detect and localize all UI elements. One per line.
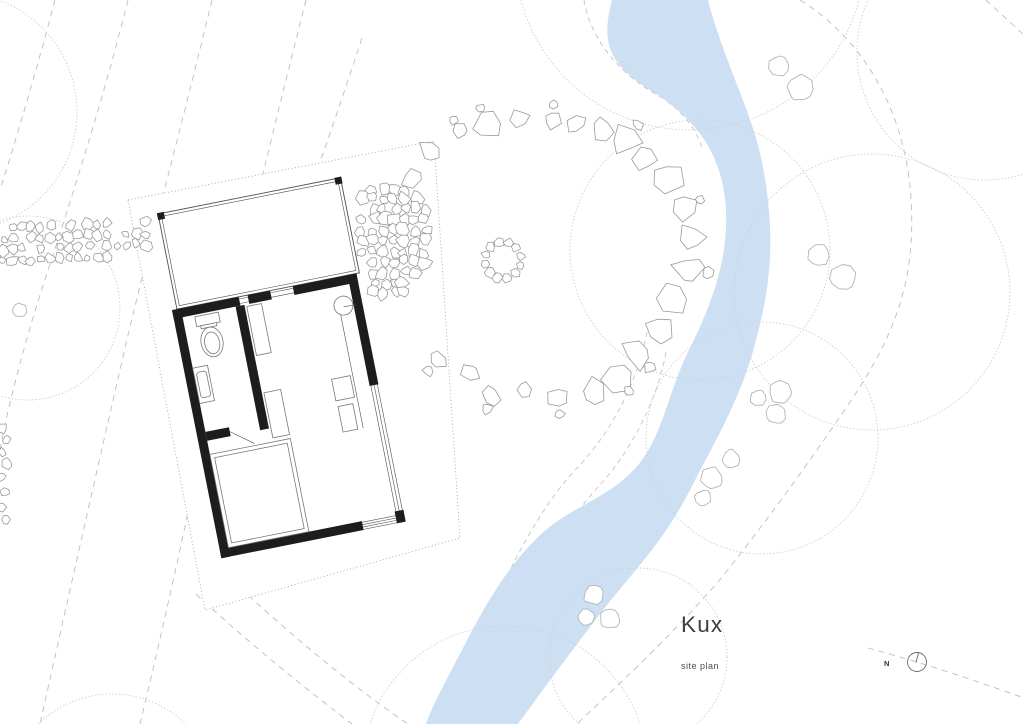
- stone: [481, 251, 490, 258]
- stone: [546, 113, 562, 130]
- bush: [787, 74, 813, 100]
- stone: [654, 167, 684, 194]
- stone: [0, 447, 6, 457]
- stone: [460, 365, 479, 381]
- stone: [486, 242, 495, 251]
- deck-post: [157, 212, 165, 220]
- stone: [567, 116, 586, 132]
- stone: [35, 222, 43, 234]
- stone: [673, 197, 697, 222]
- bush: [829, 265, 855, 290]
- stool: [332, 376, 355, 401]
- bush: [751, 390, 767, 405]
- stone: [55, 233, 62, 241]
- stone: [671, 260, 705, 282]
- stone: [517, 382, 532, 397]
- tree-canopy: [0, 0, 77, 231]
- stone: [45, 232, 57, 244]
- stone: [0, 257, 6, 264]
- bush: [769, 56, 789, 76]
- stone: [645, 362, 656, 372]
- stone: [3, 435, 12, 443]
- stone: [0, 488, 10, 496]
- contour-line: [986, 0, 1024, 35]
- stone: [6, 257, 18, 266]
- stone: [114, 242, 120, 250]
- bush: [601, 609, 620, 628]
- stone: [594, 117, 614, 141]
- deck-post: [334, 177, 342, 185]
- stone: [103, 230, 111, 240]
- stone: [2, 515, 11, 524]
- stone: [494, 238, 504, 247]
- project-title: Kux: [681, 612, 723, 637]
- site-plan-drawing: Kux site plan N: [0, 0, 1024, 724]
- stone: [549, 100, 558, 109]
- stone: [483, 405, 494, 416]
- site-plan-page: { "title": { "project": "Kux", "subtitle…: [0, 0, 1024, 724]
- stone: [681, 225, 708, 249]
- bush: [766, 405, 785, 424]
- bush: [700, 467, 721, 489]
- stone: [633, 120, 643, 131]
- stone: [17, 243, 25, 251]
- stone: [548, 390, 567, 407]
- stone: [84, 255, 90, 261]
- stone-row: [0, 216, 153, 265]
- fire-pit: [481, 238, 526, 283]
- stone: [86, 242, 96, 249]
- stone: [473, 111, 501, 135]
- stone: [72, 242, 83, 253]
- stone: [656, 283, 686, 313]
- drawing-subtitle: site plan: [681, 661, 719, 671]
- stone: [8, 233, 19, 242]
- stone: [93, 253, 103, 262]
- stone: [517, 262, 524, 270]
- stone: [75, 252, 83, 262]
- stone: [625, 386, 634, 395]
- north-dial-icon: [908, 653, 927, 672]
- stone: [66, 220, 76, 232]
- bush: [770, 380, 792, 403]
- stone: [0, 473, 6, 482]
- stone: [17, 222, 27, 231]
- stone: [0, 424, 6, 433]
- bush: [13, 303, 27, 316]
- stone: [102, 240, 112, 250]
- stone: [453, 124, 467, 139]
- contour-line: [196, 594, 352, 724]
- stone: [122, 231, 129, 237]
- stone: [45, 253, 57, 263]
- stone: [703, 266, 714, 278]
- stone: [103, 218, 112, 228]
- stone: [37, 256, 45, 262]
- stone: [123, 242, 131, 250]
- stone: [47, 220, 56, 230]
- tree-canopy: [6, 694, 218, 724]
- bush: [808, 245, 829, 266]
- stone: [510, 110, 530, 128]
- stone: [82, 218, 95, 230]
- stone: [0, 503, 7, 512]
- stone: [511, 244, 520, 252]
- contour-line: [0, 0, 55, 190]
- stone: [66, 254, 73, 262]
- stone: [389, 259, 400, 267]
- stone: [418, 213, 428, 223]
- contour-line: [868, 648, 1024, 698]
- stone: [555, 410, 566, 419]
- stone: [1, 237, 8, 243]
- stone: [632, 147, 658, 171]
- bush: [723, 449, 740, 468]
- stone: [2, 458, 12, 470]
- stone: [476, 104, 485, 112]
- stone: [103, 251, 112, 263]
- stone: [26, 221, 35, 232]
- stone: [93, 220, 101, 229]
- stone: [511, 268, 520, 277]
- north-indicator: N: [884, 653, 927, 672]
- stone: [481, 260, 490, 268]
- stone: [55, 252, 64, 263]
- bush: [694, 490, 710, 505]
- stone: [517, 252, 526, 260]
- stone: [73, 230, 84, 239]
- stone: [502, 274, 512, 283]
- stone: [37, 245, 45, 254]
- stone: [645, 319, 672, 344]
- north-needle-icon: [916, 653, 919, 663]
- stone: [57, 244, 64, 251]
- north-label: N: [884, 659, 889, 668]
- stone: [482, 385, 501, 406]
- stone: [26, 231, 37, 243]
